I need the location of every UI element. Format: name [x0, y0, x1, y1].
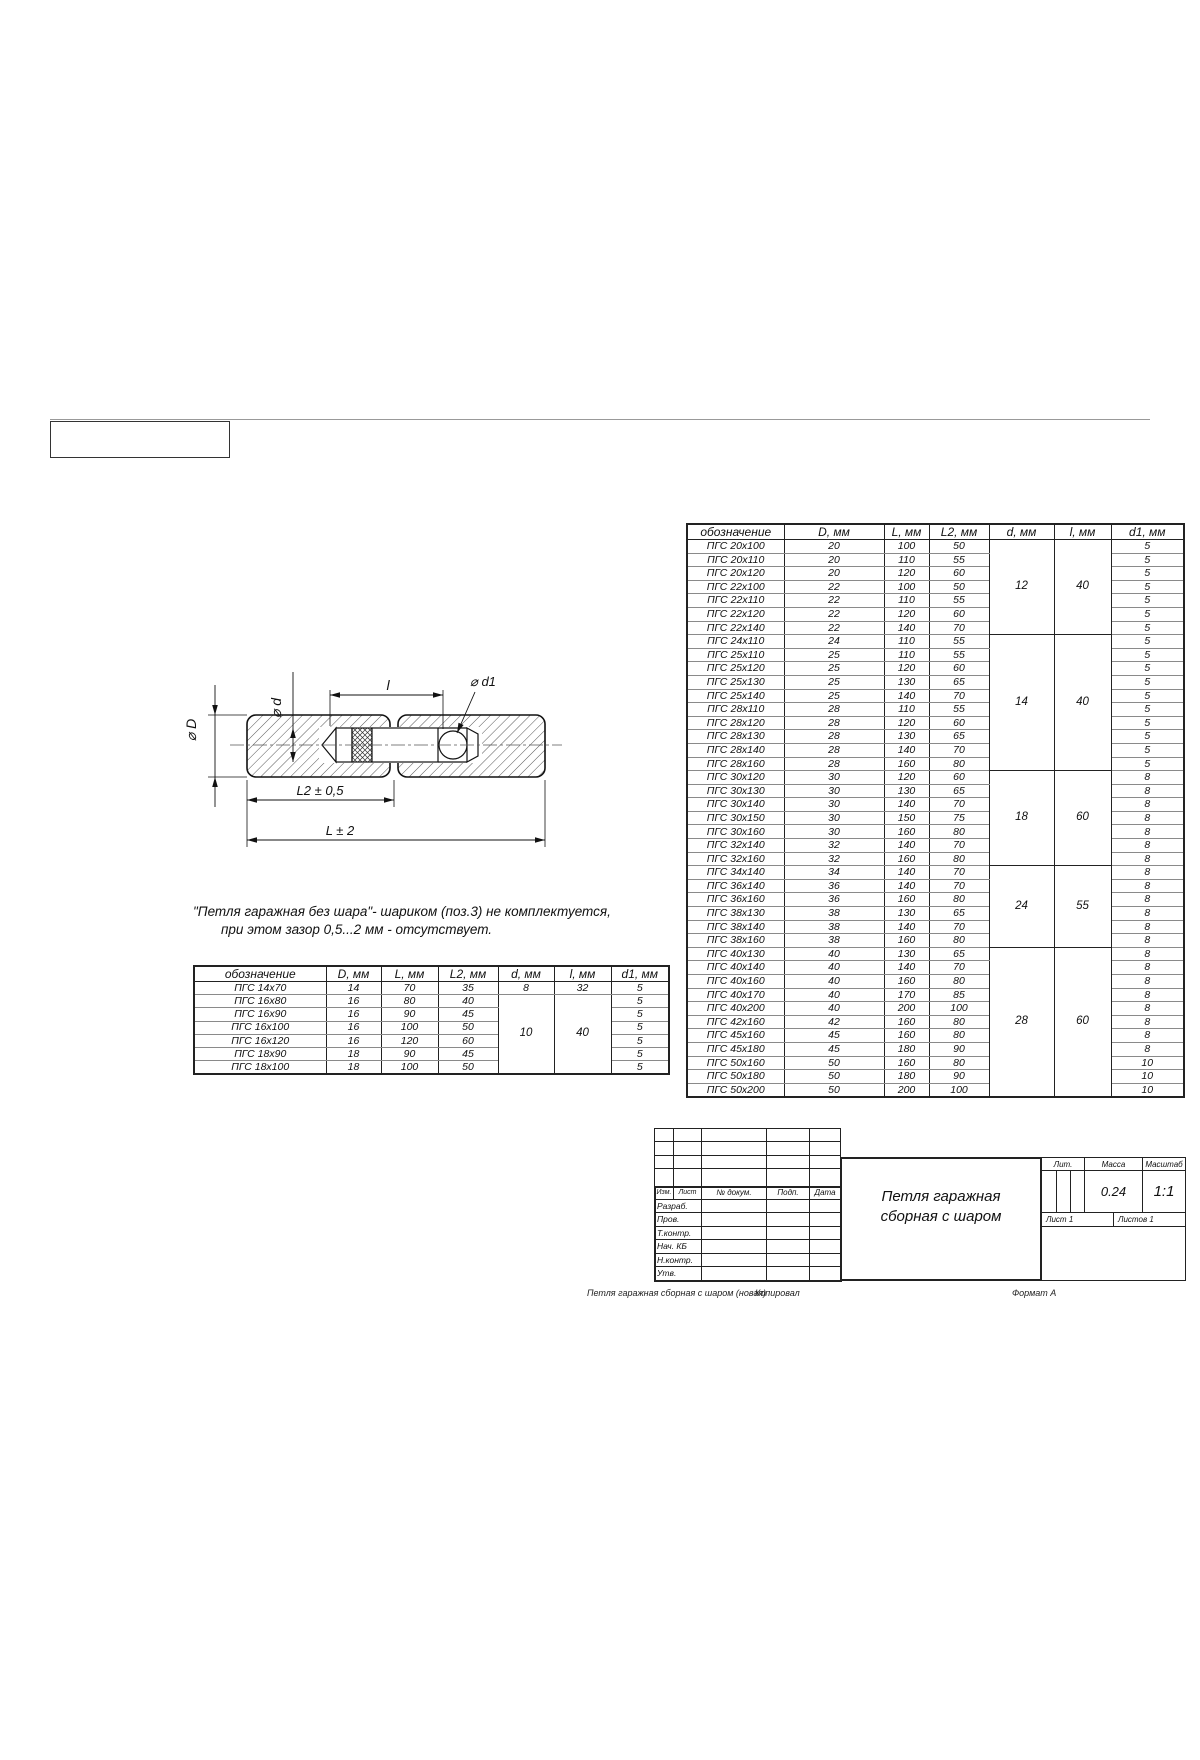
table-cell: 22	[784, 621, 884, 635]
table-cell: ПГС 20x120	[687, 567, 784, 581]
table-row: ПГС 24x110241105514405	[687, 635, 1184, 649]
assembly-note: "Петля гаражная без шара"- шариком (поз.…	[193, 903, 633, 939]
table-cell: 140	[884, 621, 929, 635]
table-cell: 70	[929, 866, 989, 880]
table-cell: 8	[1111, 934, 1184, 948]
row-nachkb: Нач. КБ	[654, 1239, 702, 1253]
table-cell: 5	[1111, 648, 1184, 662]
table-cell: ПГС 45x160	[687, 1029, 784, 1043]
table-cell: ПГС 24x110	[687, 635, 784, 649]
table-cell: 20	[784, 540, 884, 554]
table-cell: 140	[884, 920, 929, 934]
table-cell: 70	[929, 621, 989, 635]
organization-cell	[1041, 1226, 1186, 1282]
table-cell: 42	[784, 1015, 884, 1029]
table-cell: 22	[784, 580, 884, 594]
table-cell: 110	[884, 703, 929, 717]
table-cell: 140	[884, 839, 929, 853]
table-cell: 40	[1054, 540, 1111, 635]
table-cell: 160	[884, 1029, 929, 1043]
table-cell: 5	[1111, 743, 1184, 757]
row-prov: Пров.	[654, 1212, 702, 1226]
table-cell: 60	[438, 1034, 498, 1047]
sheet-top-rule	[50, 419, 1150, 420]
dimension-label-l: l	[386, 677, 390, 693]
table-cell: 50	[784, 1083, 884, 1097]
table-cell: 60	[929, 662, 989, 676]
table-cell: 60	[929, 716, 989, 730]
table-cell: ПГС 50x180	[687, 1070, 784, 1084]
table-cell: 8	[1111, 1002, 1184, 1016]
table-cell: 5	[1111, 757, 1184, 771]
table-cell: ПГС 40x200	[687, 1002, 784, 1016]
table-cell: 55	[1054, 866, 1111, 948]
table-cell: ПГС 25x120	[687, 662, 784, 676]
sheet-number: Лист 1	[1041, 1212, 1114, 1226]
table-cell: 90	[929, 1042, 989, 1056]
col-list: Лист	[673, 1186, 702, 1200]
table-cell: 60	[1054, 771, 1111, 866]
table-cell: 200	[884, 1083, 929, 1097]
table-cell: 8	[1111, 1042, 1184, 1056]
small-dimensions-table: обозначениеD, ммL, ммL2, ммd, ммl, ммd1,…	[193, 965, 670, 1075]
table-cell: 8	[1111, 961, 1184, 975]
table-cell: 40	[784, 961, 884, 975]
table-cell: 8	[1111, 1015, 1184, 1029]
table-cell: 50	[929, 540, 989, 554]
table-cell: ПГС 32x160	[687, 852, 784, 866]
table-cell: 50	[929, 580, 989, 594]
table-cell: ПГС 14x70	[194, 982, 326, 995]
table-cell: 8	[1111, 907, 1184, 921]
table-cell: 60	[929, 607, 989, 621]
table-cell: 8	[1111, 825, 1184, 839]
table-cell: ПГС 30x150	[687, 811, 784, 825]
table-cell: 80	[929, 1015, 989, 1029]
table-cell: 25	[784, 675, 884, 689]
table-cell: ПГС 28x120	[687, 716, 784, 730]
note-line-1: "Петля гаражная без шара"- шариком (поз.…	[193, 903, 633, 921]
col-izm: Изм.	[654, 1186, 674, 1200]
table-cell: 28	[784, 730, 884, 744]
table-cell: ПГС 34x140	[687, 866, 784, 880]
column-header: L2, мм	[929, 524, 989, 540]
table-cell: 50	[438, 1061, 498, 1074]
table-cell: 120	[884, 662, 929, 676]
column-header: D, мм	[784, 524, 884, 540]
lit-cell-2	[1056, 1170, 1071, 1213]
table-cell: ПГС 25x130	[687, 675, 784, 689]
col-data: Дата	[809, 1186, 841, 1200]
table-cell: 80	[929, 1056, 989, 1070]
table-cell: ПГС 38x140	[687, 920, 784, 934]
table-cell: 110	[884, 553, 929, 567]
table-cell: 20	[784, 567, 884, 581]
table-cell: 65	[929, 947, 989, 961]
table-cell: 170	[884, 988, 929, 1002]
table-cell: 8	[1111, 866, 1184, 880]
table-cell: 28	[784, 716, 884, 730]
table-cell: 24	[989, 866, 1054, 948]
table-cell: 5	[611, 995, 669, 1008]
table-cell: ПГС 28x130	[687, 730, 784, 744]
table-cell: 18	[989, 771, 1054, 866]
table-cell: 140	[884, 961, 929, 975]
table-cell: 5	[1111, 580, 1184, 594]
table-cell: 18	[326, 1047, 381, 1060]
table-cell: 55	[929, 703, 989, 717]
table-cell: ПГС 16x80	[194, 995, 326, 1008]
table-cell: 80	[929, 975, 989, 989]
table-cell: 55	[929, 553, 989, 567]
table-cell: 5	[611, 982, 669, 995]
dimension-label-D: ⌀ D	[183, 719, 199, 741]
table-cell: 36	[784, 879, 884, 893]
table-cell: 60	[929, 567, 989, 581]
table-cell: ПГС 30x160	[687, 825, 784, 839]
table-cell: 5	[1111, 662, 1184, 676]
table-cell: ПГС 22x100	[687, 580, 784, 594]
table-cell: 90	[381, 1047, 438, 1060]
table-cell: 8	[1111, 771, 1184, 785]
table-cell: 40	[784, 988, 884, 1002]
table-cell: 80	[929, 825, 989, 839]
table-cell: 16	[326, 1021, 381, 1034]
table-cell: 25	[784, 648, 884, 662]
table-cell: ПГС 22x120	[687, 607, 784, 621]
table-cell: 45	[784, 1029, 884, 1043]
table-cell: ПГС 20x100	[687, 540, 784, 554]
table-row: ПГС 16x8016804010405	[194, 995, 669, 1008]
table-cell: 20	[784, 553, 884, 567]
table-row: ПГС 34x140341407024558	[687, 866, 1184, 880]
table-cell: 65	[929, 730, 989, 744]
footer-drawing-name: Петля гаражная сборная с шаром (новая)	[587, 1288, 766, 1298]
table-cell: 8	[1111, 811, 1184, 825]
table-cell: 120	[884, 716, 929, 730]
table-cell: ПГС 36x160	[687, 893, 784, 907]
table-cell: 80	[929, 1029, 989, 1043]
column-header: обозначение	[687, 524, 784, 540]
table-cell: 8	[1111, 975, 1184, 989]
table-cell: 32	[784, 852, 884, 866]
row-nkontr: Н.контр.	[654, 1253, 702, 1267]
table-cell: 10	[1111, 1070, 1184, 1084]
table-cell: 160	[884, 852, 929, 866]
table-cell: 120	[884, 607, 929, 621]
table-cell: 110	[884, 635, 929, 649]
col-podp: Подп.	[766, 1186, 810, 1200]
table-cell: ПГС 40x140	[687, 961, 784, 975]
table-cell: 5	[611, 1008, 669, 1021]
footer-copied-label: Копировал	[755, 1288, 800, 1298]
table-cell: 10	[1111, 1056, 1184, 1070]
table-cell: 140	[884, 743, 929, 757]
table-cell: 22	[784, 607, 884, 621]
document-title-line1: Петля гаражная	[842, 1187, 1040, 1207]
table-cell: 16	[326, 1034, 381, 1047]
column-header: l, мм	[554, 966, 611, 982]
table-cell: 65	[929, 784, 989, 798]
table-cell: ПГС 40x160	[687, 975, 784, 989]
table-cell: 8	[498, 982, 554, 995]
table-cell: ПГС 50x160	[687, 1056, 784, 1070]
scale-value: 1:1	[1142, 1170, 1186, 1213]
table-cell: 12	[989, 540, 1054, 635]
table-cell: 70	[929, 839, 989, 853]
table-cell: 100	[381, 1061, 438, 1074]
table-cell: 40	[784, 975, 884, 989]
table-cell: 5	[1111, 621, 1184, 635]
table-cell: ПГС 50x200	[687, 1083, 784, 1097]
table-cell: 5	[611, 1034, 669, 1047]
table-cell: 80	[381, 995, 438, 1008]
table-cell: 100	[929, 1002, 989, 1016]
table-cell: 5	[1111, 607, 1184, 621]
table-cell: 55	[929, 648, 989, 662]
table-cell: 160	[884, 757, 929, 771]
table-cell: 160	[884, 1056, 929, 1070]
table-cell: ПГС 20x110	[687, 553, 784, 567]
table-cell: 38	[784, 934, 884, 948]
column-header: L, мм	[884, 524, 929, 540]
table-cell: 40	[784, 947, 884, 961]
table-cell: 45	[784, 1042, 884, 1056]
table-cell: 35	[438, 982, 498, 995]
dimension-label-L: L ± 2	[326, 823, 355, 838]
table-cell: 50	[438, 1021, 498, 1034]
blank-corner-box	[50, 421, 230, 458]
column-header: D, мм	[326, 966, 381, 982]
sheets-total: Листов 1	[1113, 1212, 1186, 1226]
table-cell: 130	[884, 675, 929, 689]
table-cell: 25	[784, 689, 884, 703]
big-dimensions-table: обозначениеD, ммL, ммL2, ммd, ммl, ммd1,…	[686, 523, 1185, 1098]
lit-cell-1	[1041, 1170, 1057, 1213]
scale-header: Масштаб	[1142, 1157, 1186, 1171]
table-cell: ПГС 28x110	[687, 703, 784, 717]
table-cell: 5	[1111, 703, 1184, 717]
drawing-sheet: l ⌀ d1 ⌀ d ⌀ D L2 ± 0,5 L ± 2 "Петля гар…	[0, 0, 1200, 1760]
table-row: ПГС 14x701470358325	[194, 982, 669, 995]
row-utv: Утв.	[654, 1266, 702, 1281]
table-cell: 5	[1111, 730, 1184, 744]
table-cell: 85	[929, 988, 989, 1002]
table-cell: 5	[1111, 594, 1184, 608]
table-cell: 32	[784, 839, 884, 853]
header-row: обозначениеD, ммL, ммL2, ммd, ммl, ммd1,…	[687, 524, 1184, 540]
table-cell: 140	[884, 689, 929, 703]
table-cell: 140	[884, 798, 929, 812]
table-cell: 130	[884, 730, 929, 744]
table-cell: 25	[784, 662, 884, 676]
table-cell: 8	[1111, 1029, 1184, 1043]
table-row: ПГС 40x130401306528608	[687, 947, 1184, 961]
table-cell: 28	[784, 743, 884, 757]
table-cell: ПГС 45x180	[687, 1042, 784, 1056]
table-cell: 160	[884, 934, 929, 948]
table-cell: ПГС 28x140	[687, 743, 784, 757]
table-row: ПГС 20x100201005012405	[687, 540, 1184, 554]
table-cell: 40	[554, 995, 611, 1074]
table-cell: 65	[929, 675, 989, 689]
table-cell: 140	[884, 879, 929, 893]
table-cell: ПГС 25x140	[687, 689, 784, 703]
table-cell: ПГС 18x90	[194, 1047, 326, 1060]
column-header: L, мм	[381, 966, 438, 982]
table-cell: 150	[884, 811, 929, 825]
table-cell: ПГС 16x120	[194, 1034, 326, 1047]
column-header: l, мм	[1054, 524, 1111, 540]
table-cell: 30	[784, 811, 884, 825]
table-cell: 160	[884, 893, 929, 907]
table-cell: 160	[884, 825, 929, 839]
table-cell: 60	[929, 771, 989, 785]
table-cell: 10	[498, 995, 554, 1074]
table-cell: 70	[929, 689, 989, 703]
document-title-cell: Петля гаражная сборная с шаром	[840, 1157, 1042, 1281]
row-razrab: Разраб.	[654, 1199, 702, 1213]
table-cell: 70	[929, 920, 989, 934]
table-cell: 8	[1111, 798, 1184, 812]
table-cell: 28	[784, 757, 884, 771]
table-cell: 90	[381, 1008, 438, 1021]
table-cell: 45	[438, 1008, 498, 1021]
dimension-label-L2: L2 ± 0,5	[297, 783, 345, 798]
table-cell: ПГС 40x130	[687, 947, 784, 961]
table-cell: 14	[989, 635, 1054, 771]
table-cell: 90	[929, 1070, 989, 1084]
col-ndokum: № докум.	[701, 1186, 767, 1200]
footer-format-label: Формат А	[1012, 1288, 1056, 1298]
table-cell: 100	[381, 1021, 438, 1034]
table-cell: 5	[611, 1021, 669, 1034]
hinge-cross-section-diagram: l ⌀ d1 ⌀ d ⌀ D L2 ± 0,5 L ± 2	[160, 600, 580, 870]
note-line-2: при этом зазор 0,5...2 мм - отсутствует.	[221, 921, 633, 939]
table-cell: 24	[784, 635, 884, 649]
table-cell: 5	[1111, 689, 1184, 703]
table-cell: ПГС 18x100	[194, 1061, 326, 1074]
table-cell: 8	[1111, 920, 1184, 934]
table-cell: ПГС 40x170	[687, 988, 784, 1002]
document-title-line2: сборная с шаром	[842, 1207, 1040, 1227]
table-cell: 16	[326, 1008, 381, 1021]
table-cell: 8	[1111, 839, 1184, 853]
table-cell: 130	[884, 947, 929, 961]
table-cell: 8	[1111, 784, 1184, 798]
table-cell: 34	[784, 866, 884, 880]
column-header: d1, мм	[611, 966, 669, 982]
table-cell: 30	[784, 784, 884, 798]
table-cell: 80	[929, 934, 989, 948]
table-cell: 5	[1111, 716, 1184, 730]
table-cell: 100	[884, 580, 929, 594]
column-header: обозначение	[194, 966, 326, 982]
table-cell: 18	[326, 1061, 381, 1074]
table-cell: ПГС 22x110	[687, 594, 784, 608]
table-cell: 28	[989, 947, 1054, 1097]
table-cell: 70	[929, 879, 989, 893]
table-cell: 100	[929, 1083, 989, 1097]
table-cell: 30	[784, 798, 884, 812]
table-cell: 45	[438, 1047, 498, 1060]
table-cell: ПГС 28x160	[687, 757, 784, 771]
mass-header: Масса	[1084, 1157, 1143, 1171]
table-cell: ПГС 22x140	[687, 621, 784, 635]
row-tkontr: Т.контр.	[654, 1226, 702, 1240]
dimension-label-d1: ⌀ d1	[470, 674, 496, 689]
table-cell: 22	[784, 594, 884, 608]
table-cell: ПГС 38x160	[687, 934, 784, 948]
table-cell: 5	[611, 1061, 669, 1074]
table-cell: 55	[929, 635, 989, 649]
table-cell: 10	[1111, 1083, 1184, 1097]
column-header: d, мм	[498, 966, 554, 982]
header-row: обозначениеD, ммL, ммL2, ммd, ммl, ммd1,…	[194, 966, 669, 982]
table-cell: 100	[884, 540, 929, 554]
table-cell: 30	[784, 771, 884, 785]
table-cell: 5	[1111, 567, 1184, 581]
table-cell: 40	[438, 995, 498, 1008]
table-cell: 8	[1111, 988, 1184, 1002]
table-cell: 130	[884, 907, 929, 921]
table-cell: 70	[929, 961, 989, 975]
table-cell: 180	[884, 1070, 929, 1084]
table-cell: ПГС 38x130	[687, 907, 784, 921]
table-cell: 38	[784, 907, 884, 921]
table-cell: 130	[884, 784, 929, 798]
table-cell: ПГС 16x100	[194, 1021, 326, 1034]
table-cell: 180	[884, 1042, 929, 1056]
table-cell: 50	[784, 1056, 884, 1070]
table-cell: ПГС 30x120	[687, 771, 784, 785]
table-cell: 65	[929, 907, 989, 921]
column-header: d1, мм	[1111, 524, 1184, 540]
table-cell: 8	[1111, 947, 1184, 961]
table-cell: 8	[1111, 879, 1184, 893]
table-cell: 8	[1111, 893, 1184, 907]
table-cell: ПГС 42x160	[687, 1015, 784, 1029]
table-cell: 110	[884, 594, 929, 608]
table-cell: 200	[884, 1002, 929, 1016]
table-cell: 50	[784, 1070, 884, 1084]
table-row: ПГС 30x120301206018608	[687, 771, 1184, 785]
table-cell: 120	[884, 771, 929, 785]
table-cell: 55	[929, 594, 989, 608]
table-cell: 40	[1054, 635, 1111, 771]
table-cell: 160	[884, 975, 929, 989]
table-cell: 30	[784, 825, 884, 839]
table-cell: 5	[611, 1047, 669, 1060]
table-cell: 80	[929, 852, 989, 866]
table-cell: 28	[784, 703, 884, 717]
table-cell: 160	[884, 1015, 929, 1029]
table-cell: 5	[1111, 675, 1184, 689]
column-header: d, мм	[989, 524, 1054, 540]
table-cell: 40	[784, 1002, 884, 1016]
table-cell: 75	[929, 811, 989, 825]
table-cell: ПГС 30x130	[687, 784, 784, 798]
table-cell: 5	[1111, 540, 1184, 554]
table-cell: 140	[884, 866, 929, 880]
table-cell: 110	[884, 648, 929, 662]
table-cell: 60	[1054, 947, 1111, 1097]
lit-cell-3	[1070, 1170, 1085, 1213]
table-cell: 70	[929, 743, 989, 757]
table-cell: 5	[1111, 553, 1184, 567]
table-cell: ПГС 32x140	[687, 839, 784, 853]
table-cell: 80	[929, 893, 989, 907]
